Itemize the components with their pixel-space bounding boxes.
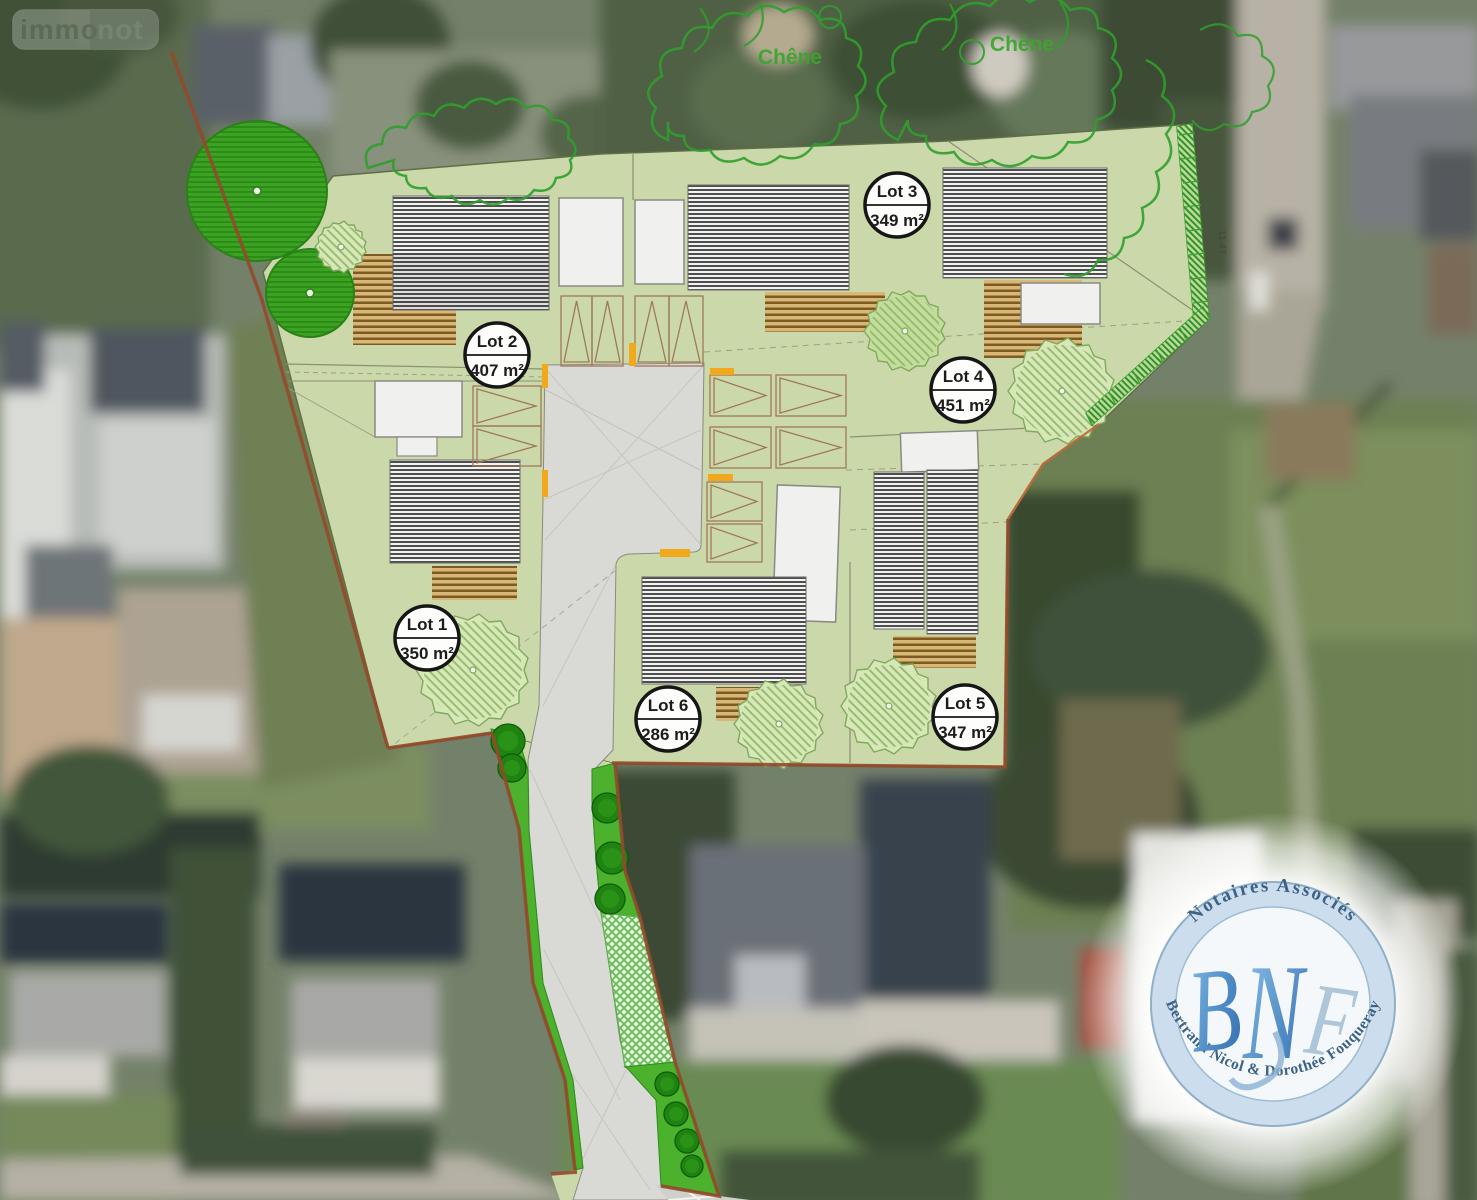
svg-text:Lot 3: Lot 3: [877, 182, 918, 201]
svg-text:407 m²: 407 m²: [470, 361, 524, 380]
svg-text:not: not: [97, 14, 144, 45]
svg-text:350 m²: 350 m²: [400, 644, 454, 663]
svg-text:11.47: 11.47: [1216, 230, 1227, 255]
svg-text:Chêne: Chêne: [990, 33, 1054, 56]
svg-text:347 m²: 347 m²: [938, 723, 992, 742]
svg-text:Chêne: Chêne: [758, 46, 822, 69]
svg-text:Lot 1: Lot 1: [407, 615, 448, 634]
svg-text:N: N: [1242, 938, 1308, 1089]
svg-text:451 m²: 451 m²: [936, 396, 990, 415]
svg-text:Lot 4: Lot 4: [943, 367, 984, 386]
svg-text:Lot 2: Lot 2: [477, 332, 518, 351]
svg-text:immo: immo: [20, 14, 99, 45]
svg-text:Lot 6: Lot 6: [648, 696, 689, 715]
svg-text:349 m²: 349 m²: [870, 211, 924, 230]
svg-text:Lot 5: Lot 5: [945, 694, 986, 713]
svg-text:286 m²: 286 m²: [641, 725, 695, 744]
